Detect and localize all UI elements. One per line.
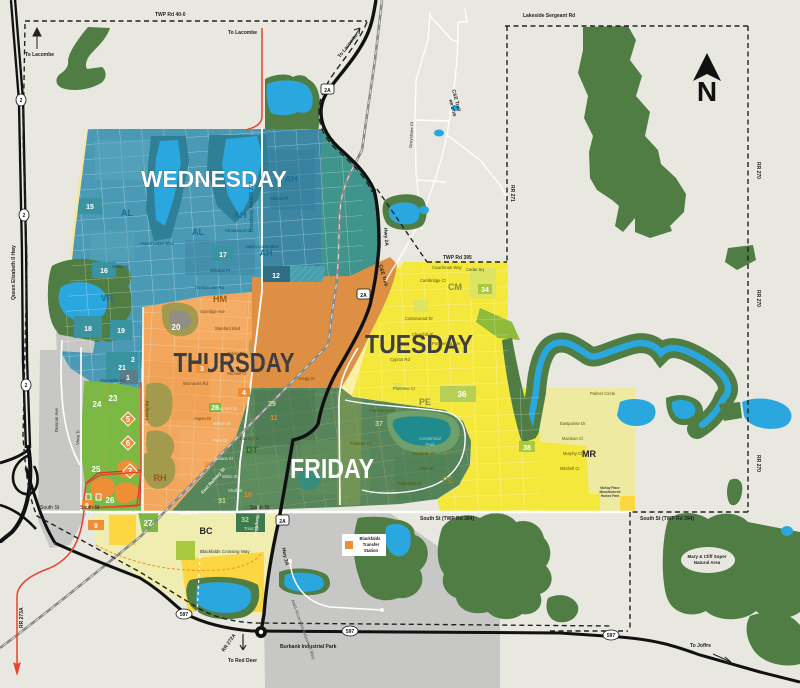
svg-text:Trout St: Trout St xyxy=(244,526,260,531)
svg-text:Eastpointe Dr: Eastpointe Dr xyxy=(560,421,586,426)
svg-text:2A: 2A xyxy=(324,88,331,94)
svg-text:5: 5 xyxy=(126,415,131,424)
svg-text:RR 270: RR 270 xyxy=(755,455,761,472)
svg-text:Aspen Lakes Blvd: Aspen Lakes Blvd xyxy=(245,244,279,249)
svg-text:Centennial: Centennial xyxy=(419,436,442,441)
svg-text:Westbrooke Rd: Westbrooke Rd xyxy=(195,285,224,290)
svg-text:BC: BC xyxy=(200,526,213,536)
svg-text:Indiana St: Indiana St xyxy=(214,456,234,461)
svg-text:37: 37 xyxy=(375,421,383,428)
svg-text:RR 270: RR 270 xyxy=(755,290,761,307)
svg-text:Valley Cr: Valley Cr xyxy=(112,264,129,269)
svg-text:Blackfalds Crossing Way: Blackfalds Crossing Way xyxy=(200,549,250,554)
svg-text:South St (TWP Rd 394): South St (TWP Rd 394) xyxy=(640,516,694,522)
svg-text:CM: CM xyxy=(448,282,462,292)
svg-text:Homes Park: Homes Park xyxy=(601,494,620,498)
svg-text:Winlo St: Winlo St xyxy=(222,474,238,479)
svg-text:South St (TWP Rd 394): South St (TWP Rd 394) xyxy=(420,516,474,522)
svg-text:Cyprus Rd: Cyprus Rd xyxy=(390,357,410,362)
svg-text:36: 36 xyxy=(458,390,467,399)
svg-text:Vista Tr: Vista Tr xyxy=(75,429,81,445)
svg-text:Lakeside Sergeant Rd: Lakeside Sergeant Rd xyxy=(523,13,575,19)
svg-text:PE: PE xyxy=(442,475,454,485)
svg-text:Churchill Pl: Churchill Pl xyxy=(412,332,433,337)
svg-text:597: 597 xyxy=(180,612,189,618)
svg-text:RR 271: RR 271 xyxy=(509,185,515,202)
svg-text:Palmer Circle: Palmer Circle xyxy=(590,391,616,396)
svg-text:2A: 2A xyxy=(360,293,367,299)
svg-text:Waghorn St: Waghorn St xyxy=(215,406,238,411)
svg-text:Gregg St: Gregg St xyxy=(298,376,316,381)
svg-text:TWP Rd 395: TWP Rd 395 xyxy=(443,255,472,261)
svg-text:South St: South St xyxy=(180,511,198,516)
svg-text:PE: PE xyxy=(419,397,431,407)
svg-text:Broadway Ave/RR 272: Broadway Ave/RR 272 xyxy=(249,182,255,232)
svg-text:To Red Deer: To Red Deer xyxy=(228,658,257,664)
svg-text:AH: AH xyxy=(285,174,298,184)
svg-text:FRIDAY: FRIDAY xyxy=(290,453,374,484)
svg-text:38: 38 xyxy=(523,445,531,452)
svg-text:32: 32 xyxy=(241,517,249,524)
svg-text:Palisades St: Palisades St xyxy=(398,481,422,486)
svg-text:DT: DT xyxy=(246,445,258,455)
svg-text:1: 1 xyxy=(126,375,130,382)
svg-text:HM: HM xyxy=(213,294,227,304)
svg-text:N: N xyxy=(697,76,717,107)
svg-text:TWP Rd 40-0: TWP Rd 40-0 xyxy=(155,12,186,18)
svg-text:RR 270: RR 270 xyxy=(755,162,761,179)
svg-text:Stanford Blvd: Stanford Blvd xyxy=(215,326,241,331)
svg-text:RH: RH xyxy=(154,473,167,483)
svg-text:Aspen Dr: Aspen Dr xyxy=(194,416,212,421)
svg-text:31: 31 xyxy=(218,498,226,505)
svg-text:South St: South St xyxy=(80,505,100,511)
svg-text:2: 2 xyxy=(25,383,28,389)
svg-text:25: 25 xyxy=(92,465,101,474)
svg-text:AL: AL xyxy=(121,208,133,218)
svg-text:Silver Dr: Silver Dr xyxy=(228,351,245,356)
svg-text:24: 24 xyxy=(93,400,102,409)
svg-text:Station: Station xyxy=(364,548,379,553)
svg-text:3: 3 xyxy=(200,366,204,373)
svg-text:WEDNESDAY: WEDNESDAY xyxy=(141,166,287,192)
svg-text:RR 273A: RR 273A xyxy=(19,607,25,628)
svg-text:Natural Area: Natural Area xyxy=(694,560,721,565)
svg-text:Shull St: Shull St xyxy=(228,488,243,493)
svg-text:2: 2 xyxy=(20,98,23,104)
svg-text:2A: 2A xyxy=(279,519,286,525)
svg-text:Queen Elizabeth II Hwy: Queen Elizabeth II Hwy xyxy=(11,245,17,300)
svg-text:Pondside Cr: Pondside Cr xyxy=(412,451,436,456)
svg-text:Wilson St: Wilson St xyxy=(213,421,232,426)
svg-text:597: 597 xyxy=(346,629,355,635)
svg-text:Mary & Cliff Soper: Mary & Cliff Soper xyxy=(687,554,726,559)
svg-text:17: 17 xyxy=(219,252,227,259)
svg-text:Pinetree Cl: Pinetree Cl xyxy=(350,441,371,446)
svg-text:Cottonwood Dr: Cottonwood Dr xyxy=(405,316,434,321)
svg-text:Arrowwood Cl: Arrowwood Cl xyxy=(225,228,251,233)
svg-text:MR: MR xyxy=(582,449,596,459)
svg-text:9: 9 xyxy=(94,523,98,530)
svg-text:18: 18 xyxy=(84,326,92,333)
svg-text:Panorama Dr: Panorama Dr xyxy=(370,408,396,413)
svg-text:26: 26 xyxy=(106,496,115,505)
svg-text:Plumtree Cr: Plumtree Cr xyxy=(393,386,416,391)
svg-text:Park: Park xyxy=(425,442,435,447)
svg-text:Cambridge Cl: Cambridge Cl xyxy=(420,278,446,283)
svg-text:Murphy Cl: Murphy Cl xyxy=(563,451,582,456)
svg-text:597: 597 xyxy=(607,633,616,639)
svg-text:To Lacombe: To Lacombe xyxy=(25,52,54,58)
svg-text:Mitchell Cr: Mitchell Cr xyxy=(560,466,580,471)
svg-text:Stanley St: Stanley St xyxy=(240,436,260,441)
svg-text:AH: AH xyxy=(260,248,273,258)
svg-text:21: 21 xyxy=(118,365,126,372)
svg-text:6: 6 xyxy=(126,439,131,448)
svg-text:4: 4 xyxy=(242,390,246,397)
svg-text:Womacks Rd: Womacks Rd xyxy=(100,378,125,383)
svg-text:Coachman Way: Coachman Way xyxy=(432,265,463,270)
svg-text:Sunrise Cl: Sunrise Cl xyxy=(227,371,246,376)
svg-text:Duncan Ave: Duncan Ave xyxy=(54,407,59,432)
svg-text:10: 10 xyxy=(244,492,252,499)
svg-text:12: 12 xyxy=(272,273,280,280)
svg-text:7: 7 xyxy=(128,467,133,476)
svg-text:Transfer: Transfer xyxy=(363,542,380,547)
svg-text:29: 29 xyxy=(268,401,276,408)
svg-text:Aspen Lakes Blvd: Aspen Lakes Blvd xyxy=(140,241,174,246)
svg-text:27: 27 xyxy=(144,519,153,528)
svg-text:19: 19 xyxy=(117,328,125,335)
svg-text:AL: AL xyxy=(192,227,204,237)
svg-text:16: 16 xyxy=(100,268,108,275)
svg-text:20: 20 xyxy=(172,323,181,332)
svg-text:Leung Rd: Leung Rd xyxy=(144,400,150,420)
svg-text:Sunridge Ave: Sunridge Ave xyxy=(200,309,226,314)
svg-text:Womacks Rd: Womacks Rd xyxy=(183,381,208,386)
svg-text:Winston Pl: Winston Pl xyxy=(210,268,230,273)
svg-text:11: 11 xyxy=(270,415,278,422)
svg-text:15: 15 xyxy=(86,204,94,211)
svg-text:23: 23 xyxy=(109,394,118,403)
svg-text:Park St: Park St xyxy=(420,466,435,471)
svg-text:To Lacombe: To Lacombe xyxy=(228,30,257,36)
svg-text:South St: South St xyxy=(40,505,60,511)
svg-text:34: 34 xyxy=(481,287,489,294)
svg-text:Park St: Park St xyxy=(213,438,228,443)
svg-text:VR: VR xyxy=(101,293,114,303)
svg-text:2: 2 xyxy=(23,213,26,219)
svg-text:Athens Pl: Athens Pl xyxy=(270,196,288,201)
svg-text:To Joffre: To Joffre xyxy=(690,643,711,649)
svg-text:Blackfalds: Blackfalds xyxy=(360,536,382,541)
svg-text:Maclean Cl: Maclean Cl xyxy=(562,436,583,441)
svg-text:2: 2 xyxy=(131,357,135,364)
svg-text:Ponderosa Ave: Ponderosa Ave xyxy=(432,341,461,346)
svg-text:AH: AH xyxy=(234,210,247,220)
svg-text:Hwy 2A: Hwy 2A xyxy=(382,228,389,247)
svg-text:Cedar Sq: Cedar Sq xyxy=(466,267,484,272)
